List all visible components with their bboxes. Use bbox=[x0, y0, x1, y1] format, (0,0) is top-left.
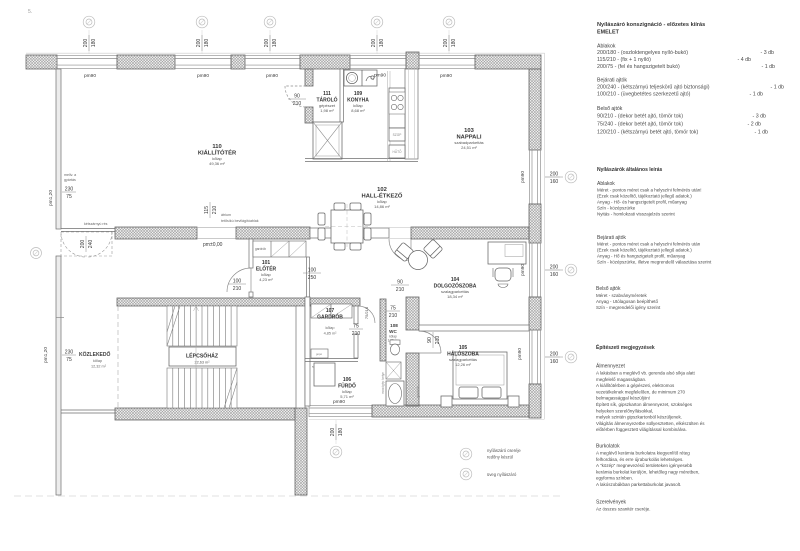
svg-text:160: 160 bbox=[550, 179, 559, 185]
svg-text:pm90: pm90 bbox=[517, 348, 523, 360]
svg-text:pm1,20: pm1,20 bbox=[48, 190, 54, 206]
svg-text:200/240 - (kétszárnyú teljes: 200/240 - (kétszárnyú teljeskörű ajtó bi… bbox=[597, 85, 710, 91]
svg-text:200: 200 bbox=[80, 240, 86, 249]
svg-text:90: 90 bbox=[397, 280, 403, 286]
svg-text:160: 160 bbox=[550, 272, 559, 278]
svg-text:8,68 m²: 8,68 m² bbox=[351, 108, 365, 113]
svg-text:pm90: pm90 bbox=[333, 399, 345, 405]
svg-text:SZGP: SZGP bbox=[393, 133, 402, 137]
svg-text:egyforma színben.: egyforma színben. bbox=[596, 476, 633, 481]
svg-text:gyártás: gyártás bbox=[64, 178, 76, 182]
svg-text:210: 210 bbox=[389, 313, 398, 319]
svg-text:Ablakok: Ablakok bbox=[597, 181, 615, 187]
svg-text:Belső ajtók: Belső ajtók bbox=[597, 106, 623, 112]
svg-text:180: 180 bbox=[451, 39, 457, 48]
svg-text:- 3 db: - 3 db bbox=[760, 50, 774, 56]
svg-text:Szín - középszürke: Szín - középszürke bbox=[597, 206, 636, 211]
svg-text:90: 90 bbox=[294, 94, 300, 100]
svg-text:5.: 5. bbox=[28, 9, 32, 15]
svg-text:104: 104 bbox=[451, 277, 460, 283]
svg-text:75: 75 bbox=[390, 306, 396, 312]
svg-text:redőny készül: redőny készül bbox=[487, 455, 513, 460]
svg-text:EMELET: EMELET bbox=[597, 30, 620, 36]
svg-text:pm1,20: pm1,20 bbox=[43, 347, 49, 363]
svg-text:102: 102 bbox=[377, 187, 387, 193]
svg-text:Nyitás - homlokzati visszajelz: Nyitás - homlokzati visszajelzés szerint bbox=[597, 212, 676, 217]
svg-text:kőlap: kőlap bbox=[325, 326, 334, 330]
svg-text:210: 210 bbox=[352, 331, 361, 337]
svg-text:200: 200 bbox=[550, 172, 559, 178]
svg-text:200: 200 bbox=[196, 39, 202, 48]
svg-text:- 3 db: - 3 db bbox=[752, 114, 766, 120]
svg-text:A lakószobákban parkettaburkol: A lakószobákban parkettaburkolat javasol… bbox=[596, 482, 681, 487]
svg-text:240: 240 bbox=[88, 240, 94, 249]
svg-text:megfelelő magasságban.: megfelelő magasságban. bbox=[596, 377, 646, 382]
svg-text:Méret - pontos méret csak a he: Méret - pontos méret csak a helyszíni fe… bbox=[597, 188, 702, 193]
svg-text:pm90: pm90 bbox=[197, 73, 209, 79]
svg-text:kőlap: kőlap bbox=[93, 359, 102, 363]
svg-text:Bejárati ajtók: Bejárati ajtók bbox=[597, 78, 627, 84]
svg-text:100: 100 bbox=[233, 279, 242, 285]
svg-text:90/210 - (dekor betét ajtó,: 90/210 - (dekor betét ajtó, tömör tok) bbox=[597, 114, 683, 120]
svg-text:átrium: átrium bbox=[221, 213, 231, 217]
svg-text:A kiállítótérben a gépészeti,: A kiállítótérben a gépészeti, elektromos bbox=[596, 383, 675, 388]
svg-text:250: 250 bbox=[308, 275, 317, 281]
svg-text:24,51 m²: 24,51 m² bbox=[461, 145, 477, 150]
svg-text:GARDRÓB: GARDRÓB bbox=[317, 313, 343, 321]
svg-text:Méret - szabványméretek: Méret - szabványméretek bbox=[596, 293, 648, 298]
svg-text:4,85 m²: 4,85 m² bbox=[324, 332, 338, 336]
svg-text:200: 200 bbox=[550, 265, 559, 271]
svg-text:200: 200 bbox=[371, 39, 377, 48]
svg-text:- 1 db: - 1 db bbox=[749, 92, 763, 98]
svg-text:49,36 m²: 49,36 m² bbox=[209, 161, 225, 166]
svg-text:melyek szintén gipszkartonból: melyek szintén gipszkartonból készüljene… bbox=[596, 415, 682, 420]
svg-text:200/75 - (fel és hangszigete: 200/75 - (fel és hangszigetelt bukó) bbox=[597, 64, 680, 70]
svg-text:Szín - megrendelői igény szeri: Szín - megrendelői igény szerint bbox=[596, 305, 661, 310]
svg-text:230: 230 bbox=[65, 187, 74, 193]
svg-text:kétszárnyú rés: kétszárnyú rés bbox=[84, 222, 108, 226]
svg-text:pm90: pm90 bbox=[266, 73, 278, 79]
svg-text:106: 106 bbox=[343, 377, 352, 383]
svg-text:Nyílászárók általános leírás: Nyílászárók általános leírás bbox=[597, 167, 663, 173]
svg-text:210: 210 bbox=[396, 287, 405, 293]
svg-text:200: 200 bbox=[83, 39, 89, 48]
svg-text:*: * bbox=[312, 365, 314, 370]
svg-text:pm90: pm90 bbox=[520, 264, 526, 276]
svg-text:Szín - középszürke, illetve me: Szín - középszürke, illetve megrendelő v… bbox=[597, 260, 712, 265]
svg-text:75: 75 bbox=[66, 194, 72, 200]
svg-text:109: 109 bbox=[354, 91, 363, 97]
svg-text:Az összes szanitér cseréje.: Az összes szanitér cseréje. bbox=[596, 507, 651, 512]
svg-text:100/210 - (üvegbetétes szerk: 100/210 - (üvegbetétes szerkezetű ajtó) bbox=[597, 92, 691, 98]
svg-text:Burkolatok: Burkolatok bbox=[596, 444, 620, 450]
svg-text:Világítás álmennyezetbe süllye: Világítás álmennyezetbe süllyesztetten, … bbox=[596, 421, 705, 426]
svg-text:HŰTŐ: HŰTŐ bbox=[392, 149, 402, 154]
svg-text:Álmennyezet: Álmennyezet bbox=[596, 363, 626, 370]
svg-text:105: 105 bbox=[459, 345, 468, 351]
svg-text:75/210: 75/210 bbox=[364, 306, 369, 319]
svg-text:WC: WC bbox=[389, 329, 397, 334]
svg-text:belmagassággal készüljön!: belmagassággal készüljön! bbox=[596, 396, 650, 401]
svg-text:- 1 db: - 1 db bbox=[761, 64, 775, 70]
svg-text:Belső ajtók: Belső ajtók bbox=[596, 286, 621, 292]
svg-text:210: 210 bbox=[293, 101, 302, 107]
svg-text:180: 180 bbox=[272, 39, 278, 48]
svg-text:(Ezek csak közelítő, tájékozta: (Ezek csak közelítő, tájékoztató jellegű… bbox=[597, 248, 692, 253]
svg-text:103: 103 bbox=[464, 128, 474, 134]
svg-text:tetősíkú bevilágítóablak: tetősíkú bevilágítóablak bbox=[221, 219, 259, 223]
svg-text:115: 115 bbox=[204, 206, 210, 214]
svg-text:14,86 m²: 14,86 m² bbox=[374, 204, 390, 209]
svg-text:vezetékeknek megfelelően, de m: vezetékeknek megfelelően, de minimum 270 bbox=[596, 389, 686, 394]
svg-text:12,32 m²: 12,32 m² bbox=[91, 365, 107, 369]
svg-text:(Ezek csak közelítő, tájékozta: (Ezek csak közelítő, tájékoztató jellegű… bbox=[597, 194, 692, 199]
svg-text:Méret - pontos méret csak a he: Méret - pontos méret csak a helyszíni fe… bbox=[597, 242, 701, 247]
svg-text:180: 180 bbox=[379, 39, 385, 48]
svg-text:Anyag - Hő és hangszigetelt pr: Anyag - Hő és hangszigetelt profil, műan… bbox=[597, 254, 686, 259]
svg-text:- 1 db: - 1 db bbox=[754, 130, 768, 136]
svg-text:Épített sík, gipszkarton álmen: Épített sík, gipszkarton álmennyezet, sz… bbox=[596, 401, 693, 407]
svg-text:Anyag - Utólagosan beépíthető: Anyag - Utólagosan beépíthető bbox=[596, 299, 659, 304]
svg-text:160: 160 bbox=[550, 359, 559, 365]
svg-text:nyílászáró cseréje: nyílászáró cseréje bbox=[487, 448, 521, 453]
svg-text:100: 100 bbox=[308, 268, 317, 274]
svg-text:kerámia burkolat kerüljön, leh: kerámia burkolat kerüljön, lehetőleg nag… bbox=[596, 469, 700, 474]
svg-text:mellv. a: mellv. a bbox=[64, 173, 76, 177]
svg-text:Anyag - Hő- és hangszigetelt p: Anyag - Hő- és hangszigetelt profil, műa… bbox=[597, 200, 687, 205]
svg-text:18,34 m²: 18,34 m² bbox=[447, 294, 463, 299]
svg-text:22,63 m²: 22,63 m² bbox=[195, 361, 211, 365]
svg-text:Ablakok: Ablakok bbox=[597, 44, 616, 50]
svg-text:LÉPCSŐHÁZ: LÉPCSŐHÁZ bbox=[186, 352, 219, 360]
svg-text:210: 210 bbox=[435, 336, 441, 345]
svg-text:Szerelvények: Szerelvények bbox=[596, 500, 627, 506]
svg-text:Építészeti megjegyzések: Építészeti megjegyzések bbox=[596, 343, 655, 351]
svg-text:200/180 - (oszloktengelyes n: 200/180 - (oszloktengelyes nyíló-bukó) bbox=[597, 50, 688, 56]
svg-text:101: 101 bbox=[262, 260, 271, 266]
svg-text:200: 200 bbox=[330, 428, 336, 437]
svg-text:pm±0,00: pm±0,00 bbox=[203, 242, 223, 248]
svg-text:A lakásban a meglévő vb. geren: A lakásban a meglévő vb. gerenda alsó sí… bbox=[596, 371, 696, 376]
svg-text:- 4 db: - 4 db bbox=[737, 57, 751, 63]
svg-text:Bejárati ajtók: Bejárati ajtók bbox=[597, 235, 626, 241]
svg-text:210: 210 bbox=[233, 286, 242, 292]
svg-text:5,71 m²: 5,71 m² bbox=[340, 394, 354, 399]
svg-text:gépé: gépé bbox=[316, 352, 323, 356]
svg-text:12,26 m²: 12,26 m² bbox=[455, 362, 471, 367]
svg-text:200: 200 bbox=[264, 39, 270, 48]
svg-text:A meglévő kerámia burkolatra k: A meglévő kerámia burkolatra kiegyenlítő… bbox=[596, 451, 690, 456]
svg-text:A "közép" megnevezésű területe: A "közép" megnevezésű területeken igénye… bbox=[596, 463, 693, 468]
svg-text:110: 110 bbox=[212, 144, 221, 150]
svg-text:111: 111 bbox=[323, 91, 331, 97]
svg-text:75/240 - (dekor betét ajtó,: 75/240 - (dekor betét ajtó, tömör tok) bbox=[597, 122, 683, 128]
svg-text:KÖZLEKEDŐ: KÖZLEKEDŐ bbox=[79, 351, 111, 358]
svg-text:115/210 - (fix + 1 nyíló): 115/210 - (fix + 1 nyíló) bbox=[597, 57, 651, 63]
svg-text:108: 108 bbox=[390, 323, 398, 328]
svg-text:előtérben függesztett világítá: előtérben függesztett világítással kombi… bbox=[596, 427, 687, 432]
svg-text:180: 180 bbox=[338, 428, 344, 437]
svg-text:200: 200 bbox=[443, 39, 449, 48]
svg-text:pm90: pm90 bbox=[440, 73, 452, 79]
svg-text:180: 180 bbox=[91, 39, 97, 48]
svg-text:gardrób: gardrób bbox=[255, 247, 266, 251]
svg-text:180: 180 bbox=[204, 39, 210, 48]
svg-text:1,98 m²: 1,98 m² bbox=[320, 108, 334, 113]
svg-text:75: 75 bbox=[66, 357, 72, 363]
svg-text:pm90: pm90 bbox=[84, 73, 96, 79]
svg-text:107: 107 bbox=[326, 308, 335, 314]
svg-text:200: 200 bbox=[550, 352, 559, 358]
svg-text:helyeken szerelőnyílásokkal,: helyeken szerelőnyílásokkal, bbox=[596, 408, 653, 413]
svg-text:felhordása, és erre újraburkol: felhordása, és erre újraburkolás lehetsé… bbox=[596, 457, 684, 462]
svg-text:90: 90 bbox=[427, 337, 433, 343]
svg-text:üveg nyílászáró: üveg nyílászáró bbox=[487, 472, 517, 477]
svg-text:mosógép helye: mosógép helye bbox=[381, 372, 385, 394]
svg-text:210: 210 bbox=[212, 206, 218, 215]
svg-text:75: 75 bbox=[353, 324, 359, 330]
svg-text:230: 230 bbox=[65, 350, 74, 356]
svg-text:pm90: pm90 bbox=[374, 73, 386, 79]
svg-text:- 1 db: - 1 db bbox=[770, 85, 784, 91]
svg-text:Nyílászáró konszignáció - előz: Nyílászáró konszignáció - előzetes kiírá… bbox=[597, 22, 705, 28]
svg-text:pm90: pm90 bbox=[520, 171, 526, 183]
svg-text:4,23 m²: 4,23 m² bbox=[259, 277, 273, 282]
svg-text:- 2 db: - 2 db bbox=[747, 122, 761, 128]
svg-text:120/210 - (kétszárnyú betét: 120/210 - (kétszárnyú betét ajtó, tömör … bbox=[597, 130, 699, 136]
